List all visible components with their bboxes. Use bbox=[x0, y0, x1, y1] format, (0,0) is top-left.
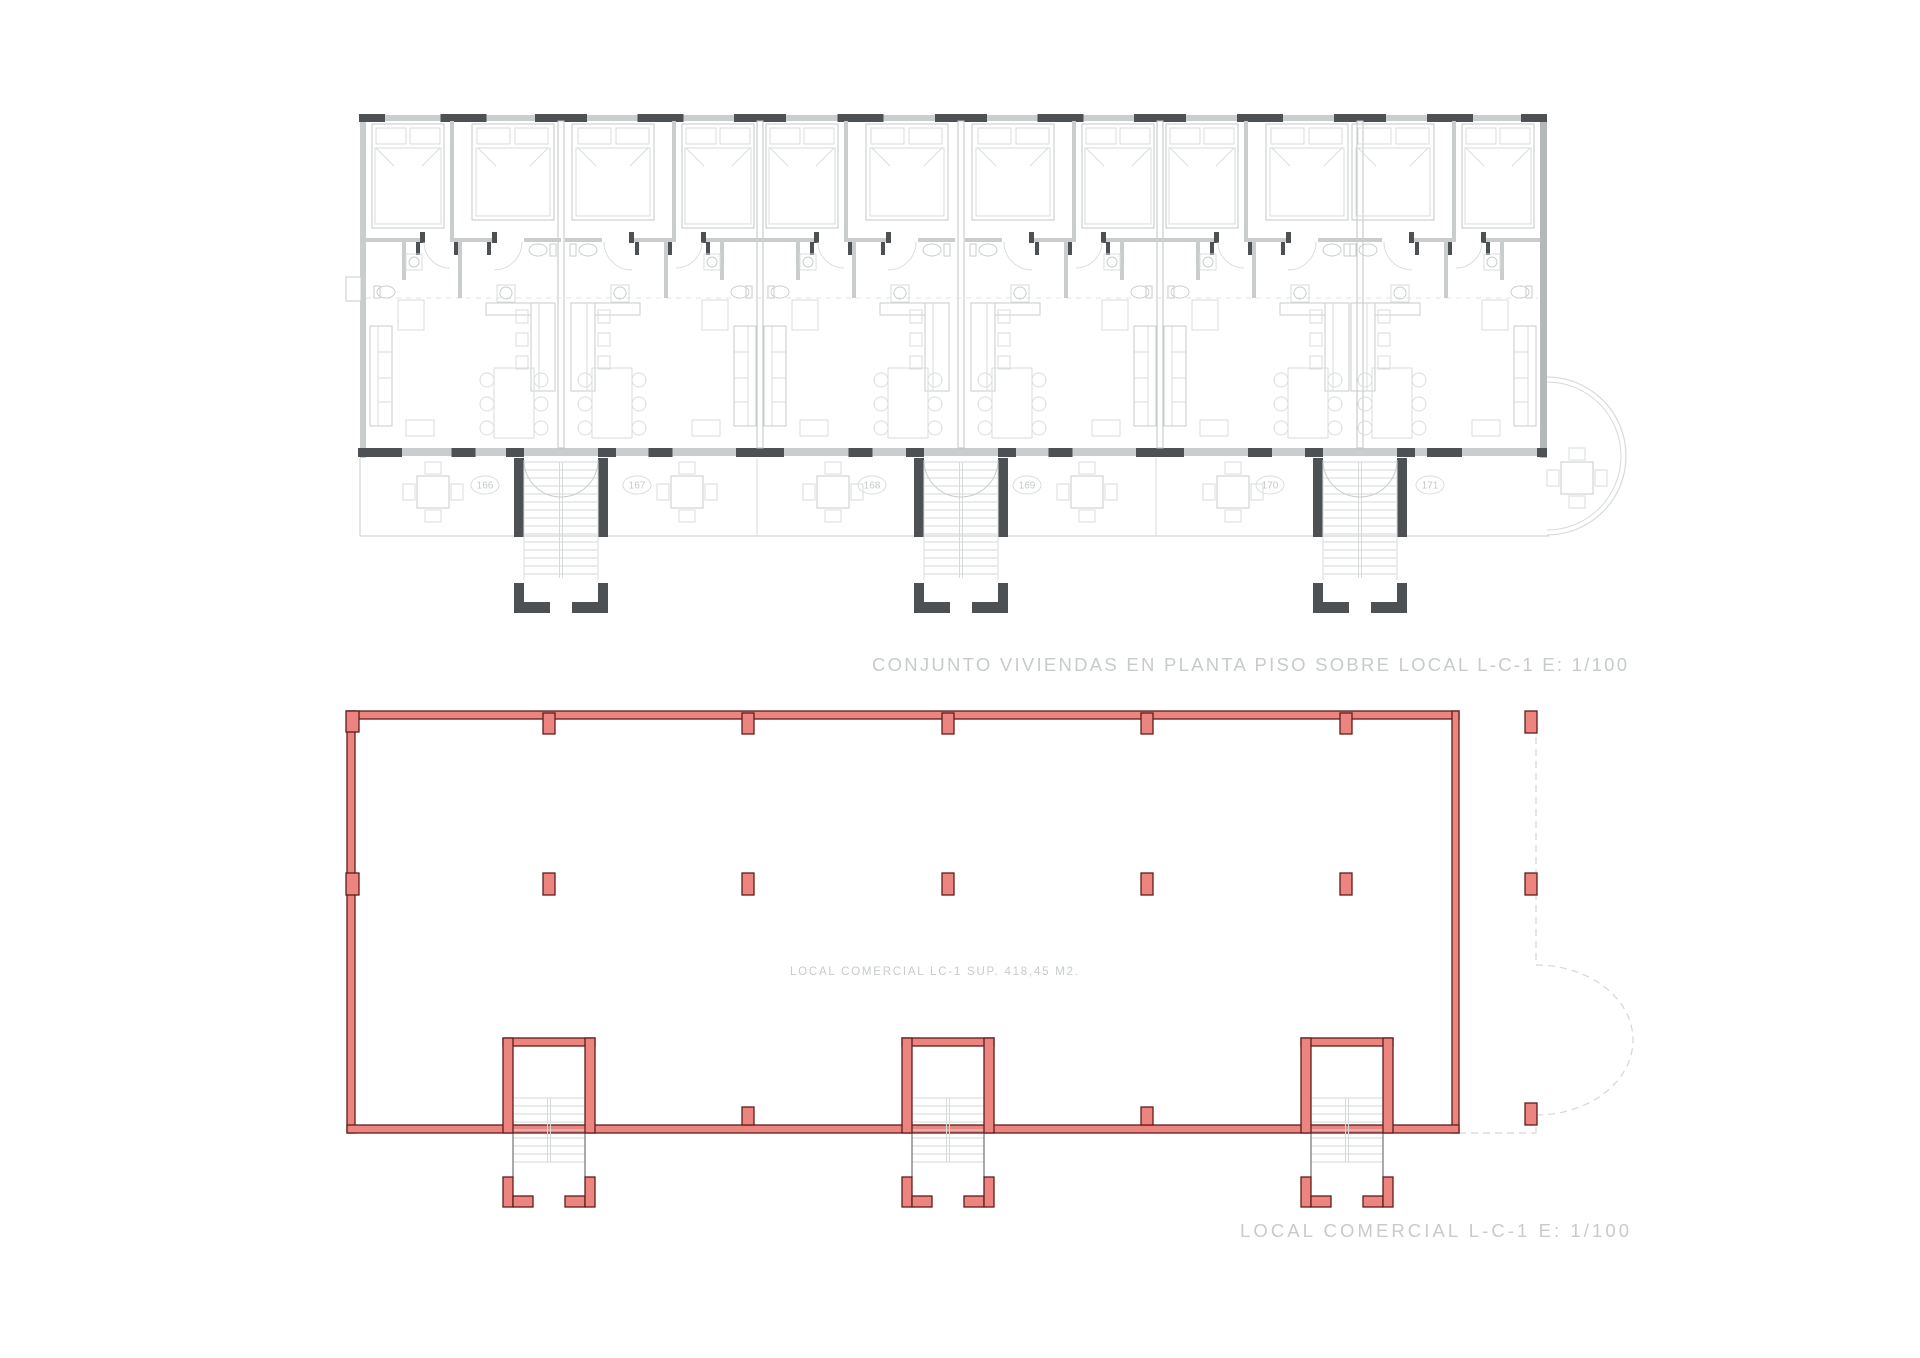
stair-foot-wall bbox=[972, 602, 998, 613]
door-swing bbox=[604, 242, 632, 270]
hall-wall bbox=[1032, 238, 1076, 242]
free-column bbox=[1141, 873, 1153, 895]
kitchen-counter bbox=[995, 303, 1040, 315]
top-wall bbox=[347, 711, 1459, 719]
door-swing bbox=[888, 242, 916, 270]
bath-jamb bbox=[668, 242, 672, 255]
stair-side-wall bbox=[1301, 1038, 1311, 1133]
wall-pier bbox=[1136, 448, 1184, 457]
stair-foot-wall bbox=[1313, 583, 1323, 613]
sink bbox=[1203, 257, 1213, 267]
pillow bbox=[1396, 128, 1429, 144]
pillow bbox=[1466, 128, 1496, 144]
stair-top-wall bbox=[1301, 1038, 1393, 1046]
sheet-fold bbox=[1272, 148, 1290, 166]
tv-cabinet bbox=[1472, 420, 1500, 436]
bath-wall bbox=[1064, 242, 1068, 298]
dining-chair bbox=[928, 397, 942, 411]
stair-pier bbox=[514, 458, 524, 537]
dining-chair bbox=[534, 421, 548, 435]
kitchen-counter bbox=[880, 303, 925, 315]
bath-jamb bbox=[1210, 242, 1214, 255]
door-swing bbox=[1004, 242, 1032, 270]
chair bbox=[657, 484, 669, 500]
dining-chair bbox=[1274, 373, 1288, 387]
stair-foot-wall bbox=[1301, 1177, 1311, 1207]
hall-wall bbox=[965, 238, 1002, 242]
dining-chair bbox=[632, 421, 646, 435]
sheet-fold bbox=[1410, 148, 1428, 166]
unit-label: 167 bbox=[629, 481, 646, 492]
terrace-table bbox=[1203, 462, 1263, 522]
stair-pier bbox=[998, 458, 1008, 537]
door-swing bbox=[494, 242, 522, 270]
apartment-unit bbox=[760, 121, 955, 438]
hall-wall bbox=[918, 238, 955, 242]
top-column bbox=[742, 713, 754, 734]
door-jamb bbox=[1214, 232, 1219, 243]
kitchen-counter bbox=[486, 303, 531, 315]
pillow bbox=[410, 128, 440, 144]
door-jamb bbox=[420, 232, 425, 243]
hall-wall bbox=[632, 238, 676, 242]
tv-cabinet bbox=[406, 420, 434, 436]
bed-sheet bbox=[375, 148, 441, 224]
kitchen-chair bbox=[998, 310, 1010, 323]
stair-foot-wall bbox=[1311, 1196, 1331, 1207]
vanity bbox=[1484, 254, 1500, 270]
chair bbox=[679, 462, 695, 474]
kitchen-counter bbox=[1280, 303, 1325, 315]
stair-side-wall bbox=[503, 1038, 513, 1133]
dining-chair bbox=[1328, 397, 1342, 411]
bath-jamb bbox=[1281, 242, 1285, 255]
dining-table bbox=[494, 368, 534, 438]
apartment-floor-plan: 166167168169170171 bbox=[346, 114, 1626, 613]
bottom-wall bbox=[360, 448, 1547, 456]
stair-top-wall bbox=[503, 1038, 595, 1046]
bedroom-divider-wall bbox=[1244, 121, 1248, 238]
kitchen-chair bbox=[1310, 310, 1322, 323]
chair bbox=[825, 462, 841, 474]
bed-sheet bbox=[476, 148, 550, 216]
commercial-floor-plan bbox=[346, 711, 1633, 1207]
unit-label: 170 bbox=[1262, 481, 1279, 492]
table bbox=[1217, 476, 1249, 508]
kitchen-chair bbox=[1378, 356, 1390, 369]
chair bbox=[1225, 510, 1241, 522]
hall-wall bbox=[1244, 238, 1288, 242]
door-jamb bbox=[1101, 232, 1106, 243]
wall-column bbox=[346, 873, 359, 895]
bed bbox=[1352, 124, 1434, 220]
sheet-titles: CONJUNTO VIVIENDAS EN PLANTA PISO SOBRE … bbox=[790, 654, 1632, 1241]
kitchen-chair bbox=[516, 310, 528, 323]
toilet bbox=[579, 244, 597, 256]
kitchen-chair bbox=[998, 356, 1010, 369]
unit-number: 167 bbox=[623, 476, 651, 494]
kitchen-chair bbox=[598, 356, 610, 369]
chair bbox=[1569, 496, 1585, 508]
dining-chair bbox=[928, 421, 942, 435]
bed-sheet bbox=[1270, 148, 1344, 216]
bath-jamb bbox=[1248, 242, 1252, 255]
bath-wall bbox=[1196, 242, 1200, 280]
door-jamb bbox=[1029, 232, 1034, 243]
stair-foot-wall bbox=[998, 583, 1008, 613]
wall-pier bbox=[1049, 448, 1073, 457]
unit-label: 166 bbox=[477, 481, 494, 492]
dining-table bbox=[888, 368, 928, 438]
toilet-tank bbox=[1344, 244, 1350, 256]
bath-jamb bbox=[706, 242, 710, 255]
sheet-fold bbox=[530, 148, 548, 166]
left-wall-jog bbox=[346, 277, 361, 301]
unit-label: 171 bbox=[1422, 481, 1439, 492]
stair-side-wall bbox=[902, 1038, 912, 1133]
party-wall bbox=[558, 121, 564, 448]
sofa bbox=[764, 326, 786, 426]
stair-foot-wall bbox=[912, 1196, 932, 1207]
chair bbox=[851, 484, 863, 500]
pillow bbox=[376, 128, 406, 144]
table bbox=[671, 476, 703, 508]
sink bbox=[894, 287, 906, 299]
stair-foot-wall bbox=[1397, 583, 1407, 613]
stair-foot-wall bbox=[1383, 1177, 1393, 1207]
hall-wall bbox=[1482, 238, 1540, 242]
bath-jamb bbox=[416, 242, 420, 255]
stairwell bbox=[503, 1038, 595, 1207]
dining-chair bbox=[1412, 421, 1426, 435]
dining-chair bbox=[1274, 421, 1288, 435]
door-swing bbox=[1218, 242, 1244, 268]
stair-side-wall bbox=[984, 1038, 994, 1133]
pillow bbox=[1309, 128, 1342, 144]
stairwell bbox=[1301, 1038, 1393, 1207]
side-table bbox=[1102, 300, 1128, 330]
bath-wall bbox=[458, 242, 462, 298]
sheet-fold bbox=[1132, 148, 1150, 166]
dining-table bbox=[1288, 368, 1328, 438]
hall-wall bbox=[1412, 238, 1456, 242]
door-swing bbox=[1384, 242, 1412, 270]
lower-plan-title: LOCAL COMERCIAL L-C-1 E: 1/100 bbox=[1240, 1220, 1632, 1241]
door-swing bbox=[1456, 242, 1482, 268]
bed bbox=[572, 124, 654, 220]
free-column bbox=[742, 873, 754, 895]
top-column bbox=[1340, 713, 1352, 734]
toilet-tank bbox=[1350, 244, 1356, 256]
wall-pier bbox=[1427, 114, 1473, 122]
terrace-table bbox=[657, 462, 717, 522]
pillow bbox=[804, 128, 834, 144]
bed bbox=[1266, 124, 1348, 220]
commercial-area-label: LOCAL COMERCIAL LC-1 SUP. 418,45 M2. bbox=[790, 966, 1080, 978]
stair-foot-wall bbox=[585, 1177, 595, 1207]
pillow bbox=[770, 128, 800, 144]
kitchen-chair bbox=[1310, 356, 1322, 369]
wall-pier bbox=[1537, 448, 1547, 457]
vanity bbox=[800, 254, 816, 270]
pillow bbox=[1170, 128, 1200, 144]
dining-chair bbox=[632, 397, 646, 411]
kitchen-chair bbox=[1310, 333, 1322, 346]
unit-label: 169 bbox=[1019, 481, 1036, 492]
bath-jamb bbox=[1106, 242, 1110, 255]
bath-wall bbox=[1120, 242, 1124, 280]
wall-pier bbox=[849, 448, 873, 457]
door-jamb bbox=[629, 232, 634, 243]
door-jamb bbox=[701, 232, 706, 243]
door-swing bbox=[818, 242, 844, 268]
stair-foot-wall bbox=[513, 1196, 533, 1207]
bath-wall bbox=[796, 242, 800, 280]
sheet-fold bbox=[1512, 148, 1530, 166]
stair-top-wall bbox=[902, 1038, 994, 1046]
top-column bbox=[543, 713, 555, 734]
bed-sheet bbox=[769, 148, 835, 224]
dining-chair bbox=[1032, 373, 1046, 387]
bath-jamb bbox=[1486, 242, 1490, 255]
sheet-fold bbox=[1030, 148, 1048, 166]
party-wall bbox=[958, 121, 964, 448]
toilet bbox=[1323, 244, 1341, 256]
party-wall bbox=[757, 121, 763, 448]
kitchen-chair bbox=[516, 356, 528, 369]
top-column bbox=[942, 713, 954, 734]
hall-wall bbox=[524, 238, 561, 242]
bed bbox=[866, 124, 948, 220]
toilet-tank bbox=[550, 244, 556, 256]
dining-chair bbox=[874, 397, 888, 411]
vanity bbox=[1200, 254, 1216, 270]
bath-jamb bbox=[635, 242, 639, 255]
sink bbox=[1107, 257, 1117, 267]
dining-chair bbox=[874, 373, 888, 387]
free-column bbox=[543, 873, 555, 895]
wall-pier bbox=[1038, 114, 1084, 122]
dining-table bbox=[992, 368, 1032, 438]
terrace-table bbox=[403, 462, 463, 522]
kitchen-counter bbox=[595, 303, 640, 315]
bedroom-divider-wall bbox=[450, 121, 454, 238]
dining-chair bbox=[480, 421, 494, 435]
bath-wall bbox=[852, 242, 856, 298]
sheet-fold bbox=[630, 148, 648, 166]
door-jamb bbox=[1305, 448, 1323, 457]
unit-number: 166 bbox=[471, 476, 499, 494]
chair bbox=[1547, 470, 1559, 486]
chair bbox=[1079, 462, 1095, 474]
bath-jamb bbox=[1035, 242, 1039, 255]
chair bbox=[1203, 484, 1215, 500]
stair-foot-wall bbox=[902, 1177, 912, 1207]
chair bbox=[1595, 470, 1607, 486]
chair bbox=[403, 484, 415, 500]
hall-wall bbox=[760, 238, 818, 242]
bed-sheet bbox=[976, 148, 1050, 216]
pillow bbox=[1271, 128, 1304, 144]
chair bbox=[1057, 484, 1069, 500]
bedroom-divider-wall bbox=[1072, 121, 1076, 238]
bath-jamb bbox=[881, 242, 885, 255]
right-wall bbox=[1540, 121, 1547, 458]
tv-cabinet bbox=[1200, 420, 1228, 436]
dining-chair bbox=[1412, 397, 1426, 411]
stair-foot-wall bbox=[598, 583, 608, 613]
sheet-fold bbox=[1170, 148, 1188, 166]
stair-foot-wall bbox=[1323, 602, 1349, 613]
stair-foot-wall bbox=[503, 1177, 513, 1207]
bed-sheet bbox=[1085, 148, 1151, 224]
apartment-unit bbox=[565, 121, 760, 438]
bath-wall bbox=[720, 242, 724, 280]
pillow bbox=[909, 128, 942, 144]
toilet bbox=[979, 244, 997, 256]
wall-pier bbox=[1521, 114, 1547, 122]
chair bbox=[1225, 462, 1241, 474]
pillow bbox=[871, 128, 904, 144]
side-table bbox=[398, 300, 424, 330]
floor-plan-svg: CONJUNTO VIVIENDAS EN PLANTA PISO SOBRE … bbox=[0, 0, 1920, 1358]
pillow bbox=[1120, 128, 1150, 144]
table bbox=[417, 476, 449, 508]
kitchen-chair bbox=[998, 333, 1010, 346]
unit-label: 168 bbox=[864, 481, 881, 492]
dining-chair bbox=[978, 373, 992, 387]
kitchen-counter bbox=[1375, 303, 1420, 315]
door-jamb bbox=[814, 232, 819, 243]
wall-pier bbox=[358, 448, 402, 457]
bedroom-divider-wall bbox=[672, 121, 676, 238]
vanity bbox=[406, 254, 422, 270]
hall-wall bbox=[450, 238, 494, 242]
sofa bbox=[734, 326, 756, 426]
wall-pier bbox=[638, 114, 684, 122]
stair-foot-wall bbox=[565, 1196, 585, 1207]
bed bbox=[1082, 124, 1154, 228]
hall-wall bbox=[1102, 238, 1160, 242]
bed bbox=[372, 124, 444, 228]
dining-chair bbox=[978, 421, 992, 435]
curved-terrace bbox=[1547, 377, 1626, 535]
kitchen-chair bbox=[598, 310, 610, 323]
kitchen-chair bbox=[598, 333, 610, 346]
unit-number: 170 bbox=[1256, 476, 1284, 494]
dining-chair bbox=[480, 397, 494, 411]
dining-chair bbox=[578, 421, 592, 435]
door-jamb bbox=[1409, 232, 1414, 243]
sink bbox=[1294, 287, 1306, 299]
stair-foot-wall bbox=[964, 1196, 984, 1207]
table bbox=[1561, 462, 1593, 494]
sheet-fold bbox=[376, 148, 394, 166]
chair bbox=[425, 462, 441, 474]
bed bbox=[972, 124, 1054, 220]
free-column bbox=[942, 873, 954, 895]
bath-wall bbox=[1500, 242, 1504, 280]
stair-pier bbox=[914, 458, 924, 537]
chair bbox=[803, 484, 815, 500]
stair-foot-wall bbox=[524, 602, 550, 613]
tv-cabinet bbox=[800, 420, 828, 436]
kitchen-chair bbox=[1378, 310, 1390, 323]
stairwell bbox=[902, 1038, 994, 1207]
kitchen-chair bbox=[910, 333, 922, 346]
wall-pier bbox=[1438, 448, 1462, 457]
sheet-fold bbox=[872, 148, 890, 166]
dining-chair bbox=[874, 421, 888, 435]
sheet-fold bbox=[1466, 148, 1484, 166]
toilet bbox=[529, 244, 547, 256]
top-column bbox=[1141, 713, 1153, 734]
bath-wall bbox=[1444, 242, 1448, 298]
sheet-fold bbox=[978, 148, 996, 166]
terrace-table bbox=[1057, 462, 1117, 522]
door-swing bbox=[1288, 242, 1316, 270]
sink bbox=[409, 257, 419, 267]
chair bbox=[1105, 484, 1117, 500]
free-column bbox=[1340, 873, 1352, 895]
bath-wall bbox=[402, 242, 406, 280]
sofa bbox=[1514, 326, 1536, 426]
party-wall bbox=[1157, 121, 1163, 448]
hall-wall bbox=[1345, 238, 1382, 242]
door-swing bbox=[424, 242, 450, 268]
side-table bbox=[702, 300, 728, 330]
stair-pier bbox=[1313, 458, 1323, 537]
dining-chair bbox=[978, 397, 992, 411]
sheet-fold bbox=[770, 148, 788, 166]
pillow bbox=[578, 128, 611, 144]
hall-wall bbox=[366, 238, 424, 242]
dining-chair bbox=[1274, 397, 1288, 411]
unit-number: 169 bbox=[1013, 476, 1041, 494]
pillow bbox=[1016, 128, 1049, 144]
left-wall bbox=[347, 711, 355, 1133]
bedroom-divider-wall bbox=[1452, 121, 1456, 238]
kitchen-chair bbox=[910, 356, 922, 369]
door-jamb bbox=[1286, 232, 1291, 243]
vanity bbox=[1104, 254, 1120, 270]
chair bbox=[679, 510, 695, 522]
dining-chair bbox=[632, 373, 646, 387]
unit-number: 171 bbox=[1416, 476, 1444, 494]
sink bbox=[1487, 257, 1497, 267]
dining-table bbox=[592, 368, 632, 438]
bed bbox=[1462, 124, 1534, 228]
apartment-unit bbox=[1345, 121, 1540, 438]
pillow bbox=[686, 128, 716, 144]
upper-plan-title: CONJUNTO VIVIENDAS EN PLANTA PISO SOBRE … bbox=[872, 654, 1630, 675]
kitchen-chair bbox=[516, 333, 528, 346]
terrace-table bbox=[803, 462, 863, 522]
sheet-fold bbox=[1216, 148, 1234, 166]
dining-table bbox=[1372, 368, 1412, 438]
hall-wall bbox=[565, 238, 602, 242]
pillow bbox=[720, 128, 750, 144]
stair-foot-wall bbox=[1371, 602, 1397, 613]
sheet-fold bbox=[816, 148, 834, 166]
door-jamb bbox=[906, 448, 924, 457]
kitchen-chair bbox=[1378, 333, 1390, 346]
bath-wall bbox=[664, 242, 668, 298]
sofa bbox=[1164, 326, 1186, 426]
dining-chair bbox=[1328, 421, 1342, 435]
side-table bbox=[1192, 300, 1218, 330]
dining-chair bbox=[928, 373, 942, 387]
